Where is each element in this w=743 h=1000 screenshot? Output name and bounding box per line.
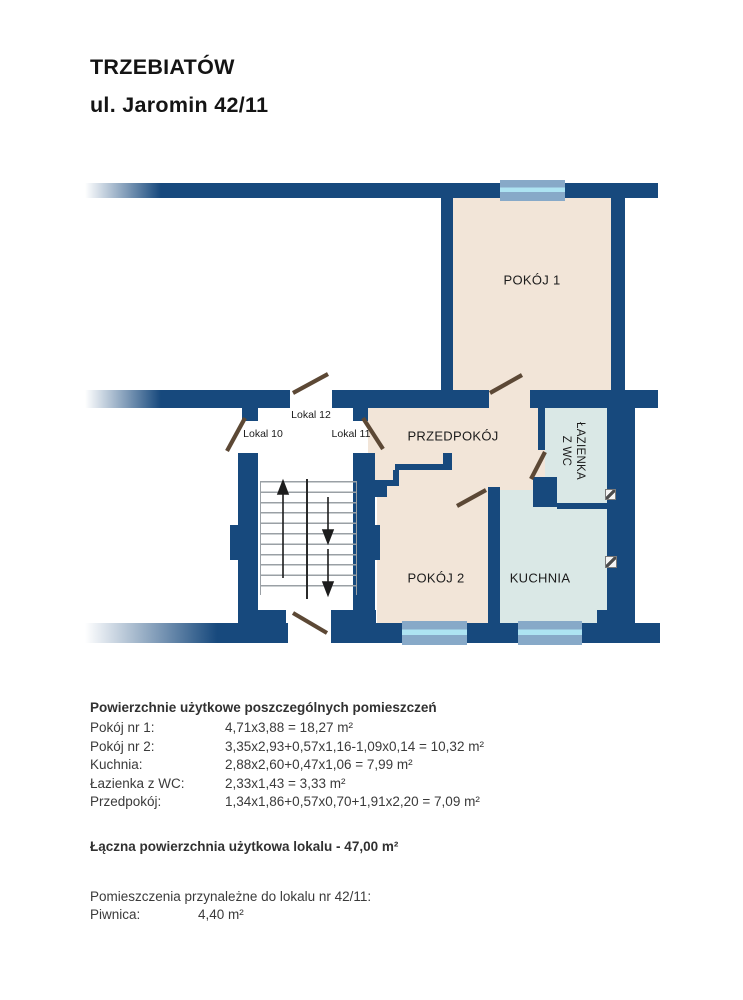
- ancillary-heading: Pomieszczenia przynależne do lokalu nr 4…: [90, 887, 670, 906]
- window-kuchnia: [518, 621, 582, 645]
- area-summary: Powierzchnie użytkowe poszczególnych pom…: [90, 700, 670, 925]
- room-label-kuchnia: KUCHNIA: [510, 571, 571, 586]
- door-leaf-lokal12: [293, 374, 328, 393]
- room-label-pokoj1: POKÓJ 1: [503, 273, 560, 288]
- wall: [85, 623, 235, 643]
- title-address: ul. Jaromin 42/11: [90, 86, 268, 124]
- wall: [530, 390, 658, 408]
- stair-divider: [306, 479, 308, 599]
- wall: [230, 525, 258, 560]
- room-pokoj2-floor: [377, 485, 488, 623]
- area-row-value: 3,35x2,93+0,57x1,16-1,09x0,14 = 10,32 m²: [225, 738, 484, 757]
- room-label-przedpokoj: PRZEDPOKÓJ: [407, 429, 498, 444]
- wall: [565, 183, 658, 198]
- unit-label-lokal10: Lokal 10: [243, 428, 283, 440]
- room-label-lazienka-line2: Z WC: [559, 422, 573, 480]
- page: { "header": { "city": "TRZEBIATÓW", "add…: [0, 0, 743, 1000]
- stair-treads: [260, 481, 357, 595]
- vent-shaft-icon: [605, 489, 616, 500]
- area-summary-heading: Powierzchnie użytkowe poszczególnych pom…: [90, 700, 670, 715]
- area-row-value: 2,33x1,43 = 3,33 m²: [225, 775, 345, 794]
- wall: [443, 453, 452, 470]
- area-row: Piwnica: 4,40 m²: [90, 906, 670, 925]
- area-row: Pokój nr 1: 4,71x3,88 = 18,27 m²: [90, 719, 670, 738]
- window-pokoj2: [402, 621, 467, 645]
- wall: [331, 610, 376, 623]
- room-pokoj1-floor: [453, 198, 611, 390]
- unit-label-lokal11: Lokal 11: [332, 428, 371, 440]
- room-label-lazienka-line1: ŁAZIENKA: [573, 422, 587, 480]
- wall: [171, 183, 500, 198]
- wall: [373, 480, 395, 486]
- door-jamb: [353, 408, 368, 421]
- room-kuchnia-floor: [500, 490, 607, 623]
- area-row-label: Piwnica:: [90, 906, 198, 925]
- floor-plan: POKÓJ 1 PRZEDPOKÓJ ŁAZIENKA Z WC POKÓJ 2…: [85, 175, 665, 645]
- wall: [171, 390, 290, 408]
- door-jamb: [242, 408, 258, 421]
- area-row-label: Pokój nr 2:: [90, 738, 225, 757]
- window-pokoj1: [500, 180, 565, 201]
- room-label-lazienka: ŁAZIENKA Z WC: [559, 422, 587, 480]
- lazienka-doorway-floor: [538, 450, 545, 477]
- wall: [332, 390, 441, 408]
- wall: [85, 390, 171, 408]
- wall: [353, 525, 380, 560]
- wall: [331, 623, 402, 643]
- unit-label-lokal12: Lokal 12: [291, 409, 331, 421]
- wall: [611, 198, 625, 392]
- wall: [245, 610, 286, 623]
- wall: [441, 390, 489, 408]
- area-row-label: Kuchnia:: [90, 756, 225, 775]
- area-row-label: Przedpokój:: [90, 793, 225, 812]
- title-city: TRZEBIATÓW: [90, 48, 268, 86]
- vent-shaft-icon: [605, 556, 617, 568]
- wall: [441, 198, 453, 408]
- document-title: TRZEBIATÓW ul. Jaromin 42/11: [90, 48, 268, 124]
- area-row: Pokój nr 2: 3,35x2,93+0,57x1,16-1,09x0,1…: [90, 738, 670, 757]
- wall: [557, 503, 607, 509]
- wall: [597, 610, 635, 623]
- wall: [607, 408, 635, 643]
- area-row: Kuchnia: 2,88x2,60+0,47x1,06 = 7,99 m²: [90, 756, 670, 775]
- wall: [533, 477, 557, 507]
- wall: [467, 623, 518, 643]
- area-row-value: 4,40 m²: [198, 906, 244, 925]
- area-row-value: 2,88x2,60+0,47x1,06 = 7,99 m²: [225, 756, 413, 775]
- area-row: Łazienka z WC: 2,33x1,43 = 3,33 m²: [90, 775, 670, 794]
- area-row: Przedpokój: 1,34x1,86+0,57x0,70+1,91x2,2…: [90, 793, 670, 812]
- door-leaf-stairwell-exit: [293, 613, 327, 633]
- area-row-label: Łazienka z WC:: [90, 775, 225, 794]
- wall: [538, 408, 545, 450]
- pokoj2-doorway-floor: [452, 450, 488, 487]
- pokoj1-doorway-floor: [489, 390, 530, 408]
- wall: [582, 623, 660, 643]
- wall: [235, 623, 288, 643]
- wall: [395, 464, 450, 470]
- area-row-label: Pokój nr 1:: [90, 719, 225, 738]
- area-row-value: 4,71x3,88 = 18,27 m²: [225, 719, 353, 738]
- wall: [85, 183, 171, 198]
- area-row-value: 1,34x1,86+0,57x0,70+1,91x2,20 = 7,09 m²: [225, 793, 480, 812]
- wall: [488, 487, 500, 623]
- total-area: Łączna powierzchnia użytkowa lokalu - 47…: [90, 839, 670, 854]
- room-label-pokoj2: POKÓJ 2: [407, 571, 464, 586]
